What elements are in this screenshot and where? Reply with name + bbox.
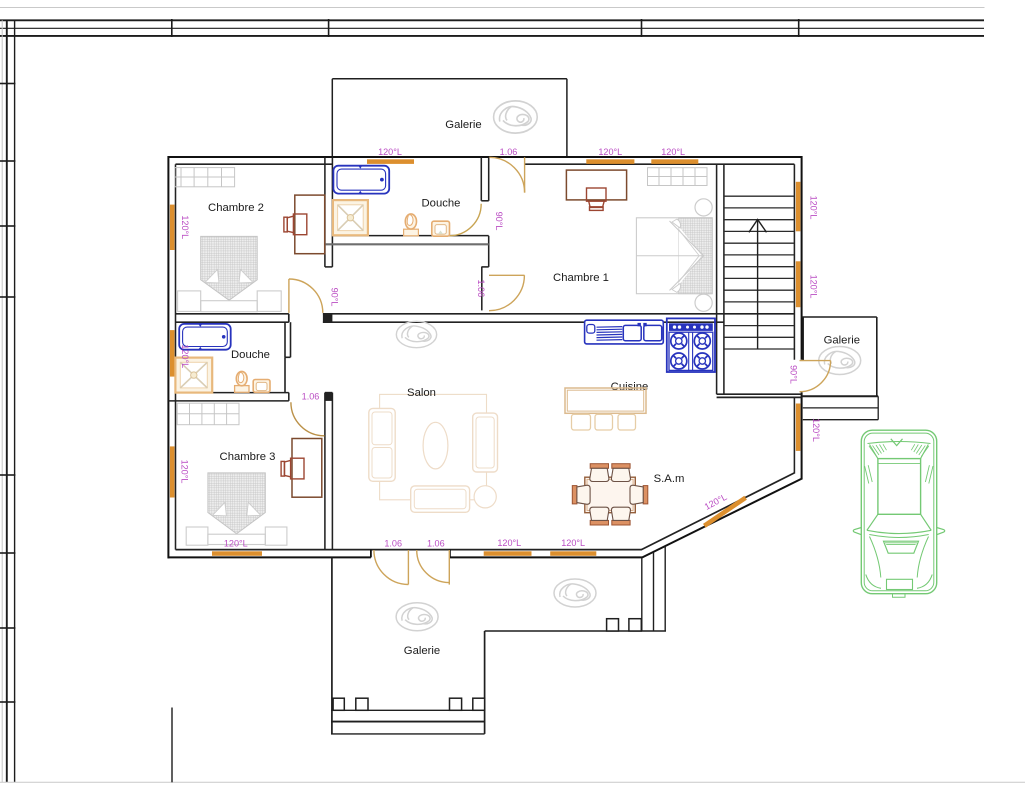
svg-text:90°L: 90°L [494, 212, 504, 231]
svg-text:1.06: 1.06 [427, 539, 445, 549]
svg-text:120°L: 120°L [378, 147, 402, 157]
svg-text:1.06: 1.06 [476, 279, 486, 297]
svg-text:120°L: 120°L [661, 147, 685, 157]
svg-text:120°L: 120°L [809, 196, 819, 220]
svg-text:120°L: 120°L [598, 147, 622, 157]
svg-text:Cuisine: Cuisine [611, 381, 649, 393]
svg-text:Galerie: Galerie [445, 119, 481, 131]
svg-text:120°L: 120°L [811, 418, 821, 442]
svg-text:120°L: 120°L [180, 460, 190, 484]
svg-text:Chambre 2: Chambre 2 [208, 202, 264, 214]
svg-text:1.06: 1.06 [500, 147, 518, 157]
svg-text:Galerie: Galerie [824, 335, 860, 347]
svg-text:1.06: 1.06 [302, 392, 320, 402]
svg-text:120°L: 120°L [180, 344, 190, 368]
svg-text:120°L: 120°L [561, 538, 585, 548]
svg-text:Salon: Salon [407, 387, 436, 399]
svg-text:120°L: 120°L [180, 215, 190, 239]
svg-text:120°L: 120°L [224, 539, 248, 549]
svg-text:Douche: Douche [231, 349, 270, 361]
svg-text:S.A.m: S.A.m [654, 473, 685, 485]
svg-text:90°L: 90°L [330, 288, 340, 307]
svg-text:120°L: 120°L [497, 538, 521, 548]
svg-text:90°L: 90°L [789, 365, 799, 384]
svg-text:Chambre 1: Chambre 1 [553, 272, 609, 284]
svg-text:1.06: 1.06 [384, 539, 402, 549]
svg-text:120°L: 120°L [809, 275, 819, 299]
svg-text:Chambre 3: Chambre 3 [220, 451, 276, 463]
svg-text:Galerie: Galerie [404, 645, 440, 657]
svg-text:Douche: Douche [422, 197, 461, 209]
